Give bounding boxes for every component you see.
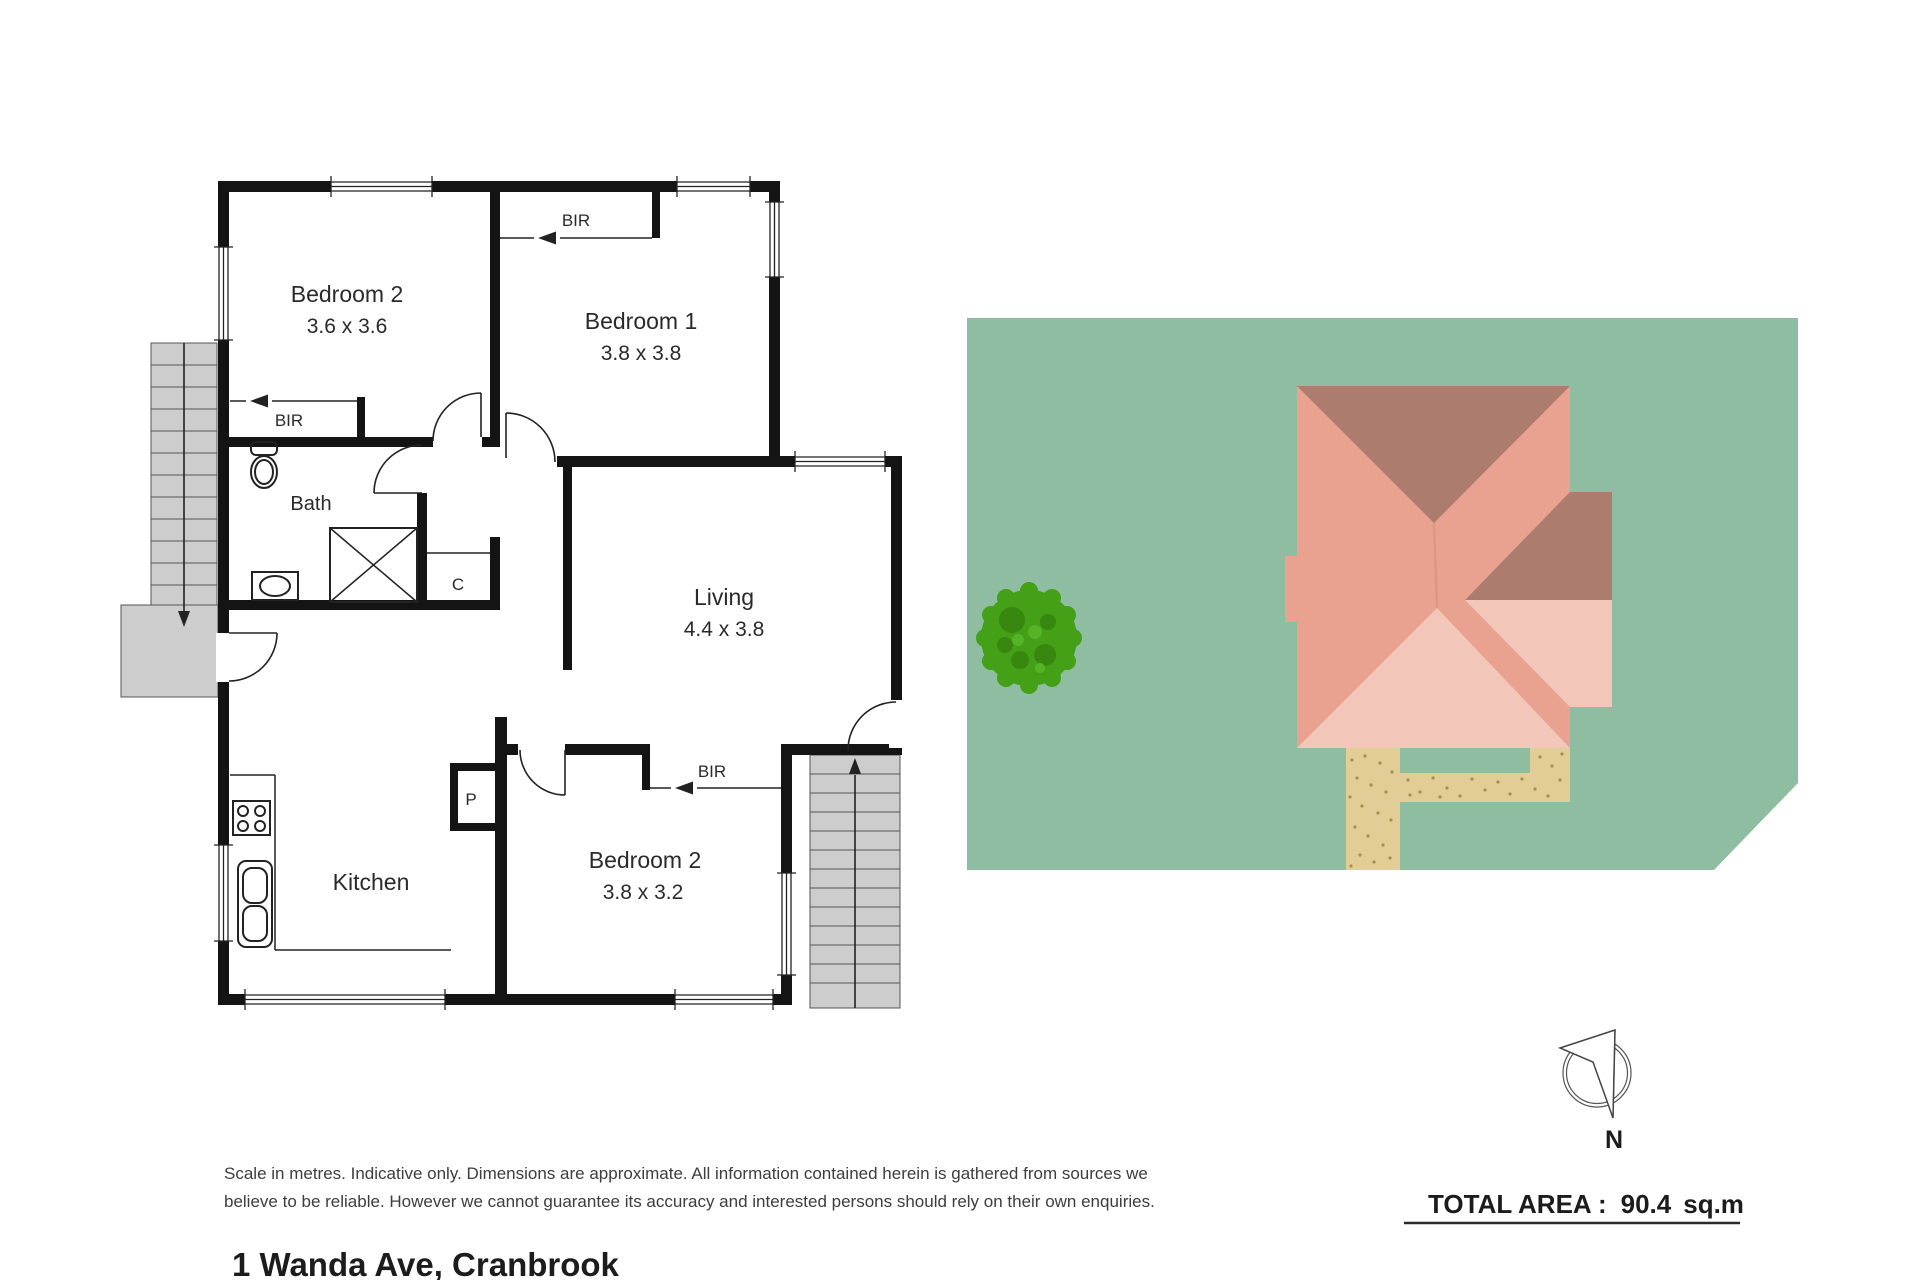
site-plan bbox=[967, 318, 1798, 870]
living-name: Living bbox=[694, 584, 754, 610]
bir-arrow-bedroom1 bbox=[500, 232, 652, 245]
stove-icon bbox=[233, 801, 270, 835]
window-right-bedroom1 bbox=[765, 202, 784, 277]
north-label: N bbox=[1605, 1126, 1623, 1154]
door-kitchen-entry bbox=[229, 633, 277, 681]
shower-icon bbox=[330, 528, 417, 602]
disclaimer-line1: Scale in metres. Indicative only. Dimens… bbox=[224, 1164, 1148, 1183]
door-bedroom2-bottom bbox=[520, 750, 565, 795]
compass: N bbox=[1560, 1030, 1631, 1154]
total-area-unit: sq.m bbox=[1683, 1189, 1744, 1219]
bir-label-bedroom2-top: BIR bbox=[275, 411, 303, 430]
kitchen-label: Kitchen bbox=[333, 869, 410, 895]
room-labels: Bedroom 2 3.6 x 3.6 Bedroom 1 3.8 x 3.8 … bbox=[275, 211, 764, 904]
living-dims: 4.4 x 3.8 bbox=[684, 618, 765, 641]
stairs-right bbox=[810, 755, 900, 1008]
pantry-label: P bbox=[465, 790, 476, 809]
sink-icon bbox=[238, 861, 272, 947]
window-right-bedroom2-bottom bbox=[777, 873, 796, 975]
total-area-value: 90.4 bbox=[1621, 1189, 1672, 1219]
bedroom2-top-name: Bedroom 2 bbox=[291, 281, 404, 307]
basin-icon bbox=[252, 572, 298, 600]
window-top-living bbox=[795, 451, 885, 472]
window-left-bedroom2 bbox=[214, 247, 233, 340]
bedroom1-dims: 3.8 x 3.8 bbox=[601, 342, 682, 365]
bir-arrow-bedroom2-top bbox=[230, 395, 357, 408]
bedroom2-bottom-dims: 3.8 x 3.2 bbox=[603, 881, 684, 904]
total-area-label: TOTAL AREA : bbox=[1428, 1189, 1607, 1219]
floorplan-page: Bedroom 2 3.6 x 3.6 Bedroom 1 3.8 x 3.8 … bbox=[0, 0, 1920, 1280]
toilet-icon bbox=[251, 442, 277, 488]
roof-left-bump bbox=[1285, 556, 1298, 622]
bedroom2-bottom-name: Bedroom 2 bbox=[589, 847, 702, 873]
bedroom2-top-dims: 3.6 x 3.6 bbox=[307, 315, 388, 338]
bir-label-bedroom2-bottom: BIR bbox=[698, 762, 726, 781]
floor-plan: Bedroom 2 3.6 x 3.6 Bedroom 1 3.8 x 3.8 … bbox=[121, 176, 904, 1010]
door-bath bbox=[374, 445, 422, 493]
door-gaps bbox=[216, 633, 904, 748]
door-living-entry bbox=[848, 702, 896, 750]
window-bottom-bedroom2 bbox=[675, 989, 773, 1010]
bir-arrow-bedroom2-bottom bbox=[650, 782, 781, 795]
disclaimer: Scale in metres. Indicative only. Dimens… bbox=[224, 1164, 1155, 1211]
property-address: 1 Wanda Ave, Cranbrook bbox=[232, 1246, 620, 1280]
bath-label: Bath bbox=[290, 493, 331, 515]
cupboard-label: C bbox=[452, 575, 464, 594]
total-area-text: TOTAL AREA :90.4sq.m bbox=[1428, 1189, 1744, 1219]
landing bbox=[121, 605, 218, 697]
bir-label-bedroom1: BIR bbox=[562, 211, 590, 230]
window-top-bedroom1 bbox=[677, 176, 750, 197]
door-bedroom2-top bbox=[433, 393, 481, 441]
disclaimer-line2: believe to be reliable. However we canno… bbox=[224, 1192, 1155, 1211]
window-bottom-kitchen bbox=[245, 989, 445, 1010]
window-left-kitchen bbox=[214, 845, 233, 941]
stairs-left bbox=[121, 343, 218, 697]
summary: TOTAL AREA :90.4sq.m bbox=[1404, 1189, 1744, 1223]
bedroom1-name: Bedroom 1 bbox=[585, 308, 698, 334]
house-roof bbox=[1285, 386, 1612, 748]
door-bedroom1 bbox=[506, 413, 555, 462]
window-top-bedroom2 bbox=[331, 176, 432, 197]
floorplan-image: Bedroom 2 3.6 x 3.6 Bedroom 1 3.8 x 3.8 … bbox=[0, 0, 1920, 1280]
north-needle-icon bbox=[1560, 1030, 1615, 1118]
